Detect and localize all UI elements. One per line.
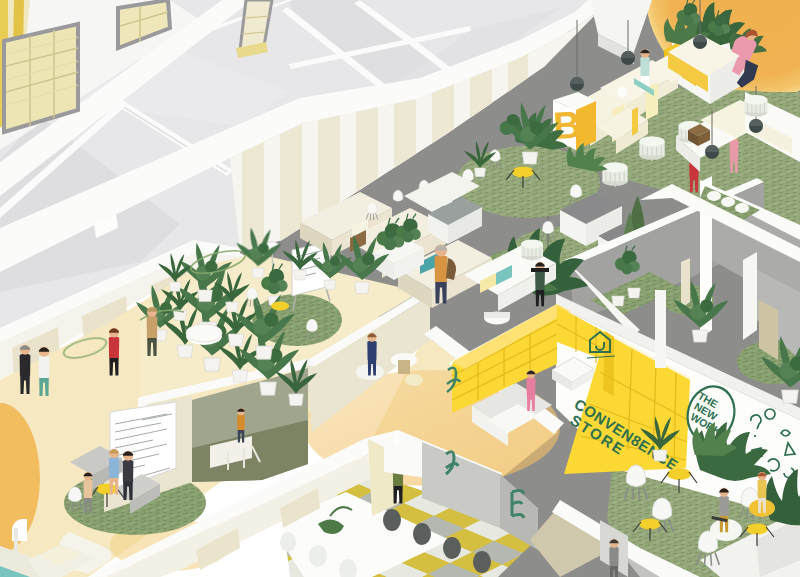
svg-text:B: B [552, 104, 582, 147]
